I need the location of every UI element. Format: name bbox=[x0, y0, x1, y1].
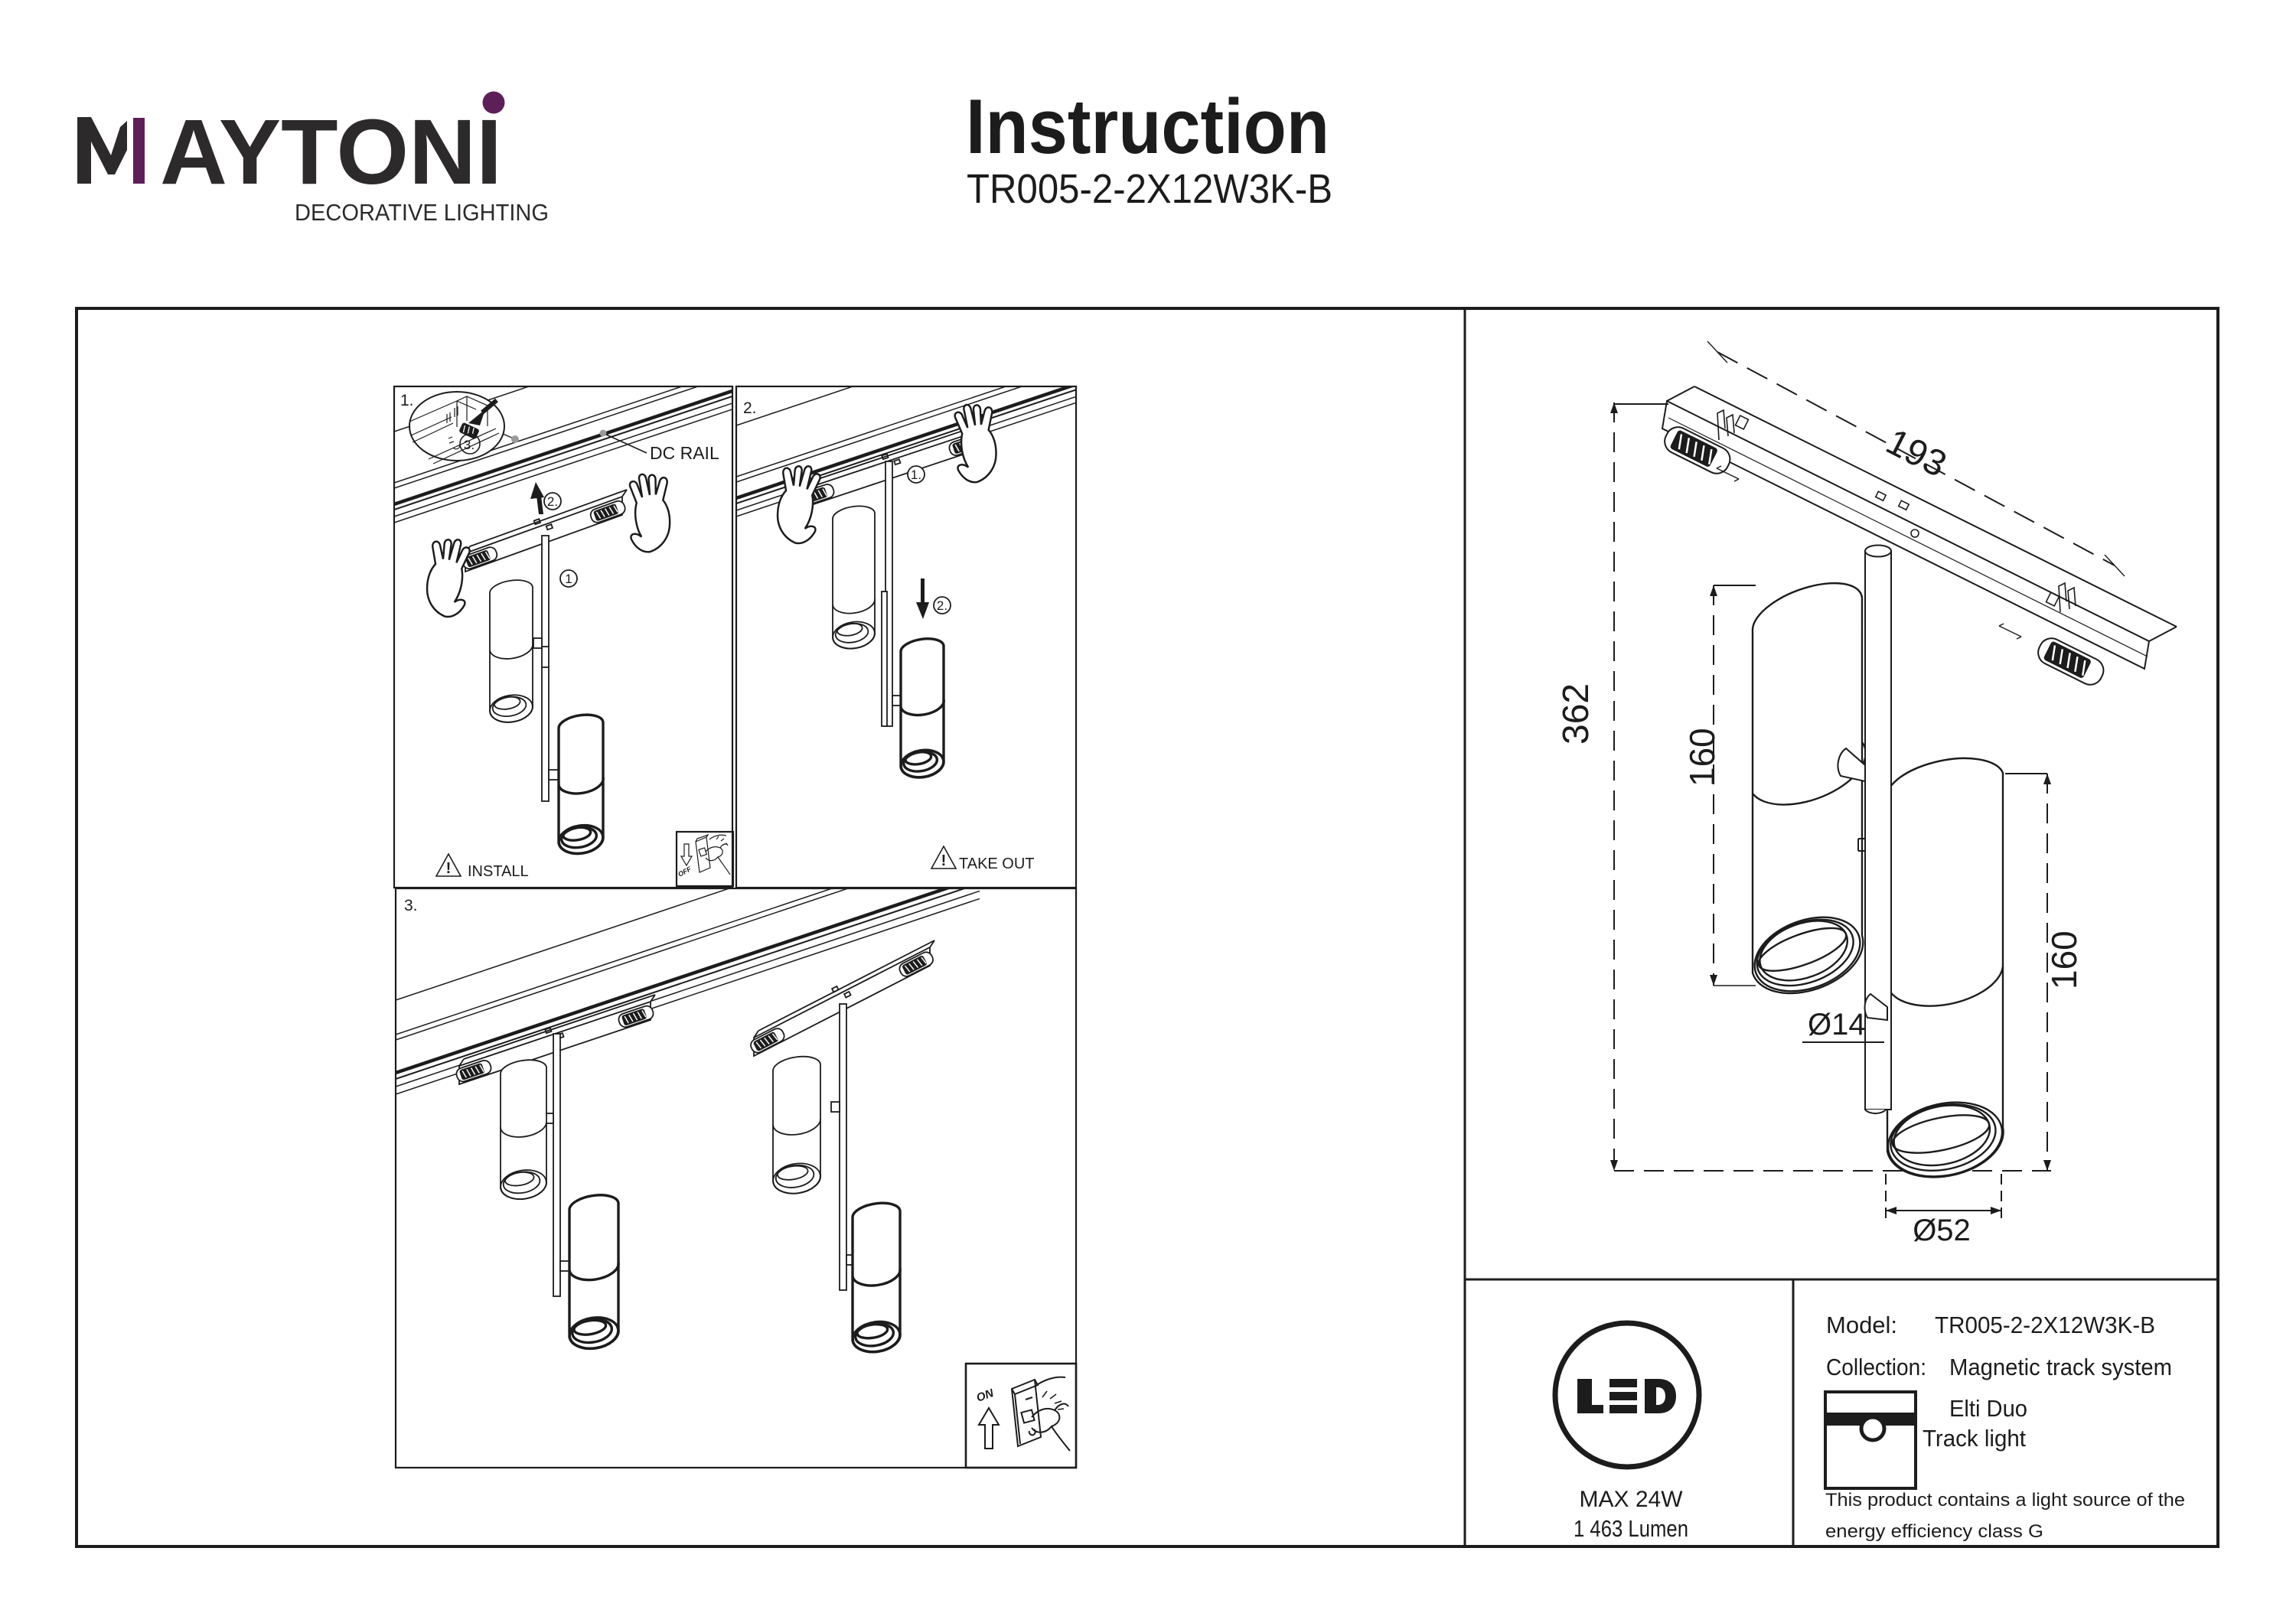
svg-text:MAX 24W: MAX 24W bbox=[1579, 1487, 1683, 1512]
svg-text:TAKE OUT: TAKE OUT bbox=[959, 855, 1035, 872]
svg-text:Track light: Track light bbox=[1923, 1425, 2026, 1452]
svg-text:2.: 2. bbox=[743, 399, 757, 417]
svg-text:AYTONI: AYTONI bbox=[160, 99, 502, 204]
svg-text:1: 1 bbox=[565, 572, 572, 586]
svg-text:2.: 2. bbox=[937, 598, 947, 613]
svg-text:Magnetic track system: Magnetic track system bbox=[1949, 1354, 2172, 1380]
svg-text:Model:: Model: bbox=[1826, 1312, 1897, 1338]
svg-text:energy efficiency class G: energy efficiency class G bbox=[1825, 1521, 2043, 1542]
svg-text:DECORATIVE LIGHTING: DECORATIVE LIGHTING bbox=[295, 199, 549, 226]
svg-text:!: ! bbox=[446, 860, 452, 877]
svg-text:Elti Duo: Elti Duo bbox=[1949, 1395, 2027, 1422]
svg-text:2.: 2. bbox=[547, 494, 558, 509]
svg-text:Instruction: Instruction bbox=[966, 84, 1329, 170]
svg-text:Collection:: Collection: bbox=[1826, 1354, 1926, 1380]
svg-text:1.: 1. bbox=[911, 468, 921, 482]
svg-text:Ø52: Ø52 bbox=[1913, 1214, 1971, 1247]
svg-text:362: 362 bbox=[1556, 683, 1596, 745]
svg-text:160: 160 bbox=[2044, 930, 2084, 989]
svg-text:INSTALL: INSTALL bbox=[468, 863, 529, 880]
svg-text:Ø14: Ø14 bbox=[1808, 1008, 1866, 1041]
svg-text:160: 160 bbox=[1682, 728, 1722, 787]
svg-text:This product contains a light: This product contains a light source of … bbox=[1825, 1490, 2185, 1511]
svg-text:DC RAIL: DC RAIL bbox=[650, 443, 719, 463]
svg-text:1 463 Lumen: 1 463 Lumen bbox=[1574, 1515, 1688, 1542]
svg-text:3.: 3. bbox=[464, 438, 475, 452]
svg-text:3.: 3. bbox=[404, 897, 418, 914]
svg-text:TR005-2-2X12W3K-B: TR005-2-2X12W3K-B bbox=[1935, 1312, 2155, 1338]
svg-text:!: ! bbox=[941, 852, 947, 869]
svg-text:TR005-2-2X12W3K-B: TR005-2-2X12W3K-B bbox=[967, 166, 1332, 212]
svg-text:1.: 1. bbox=[400, 392, 414, 409]
